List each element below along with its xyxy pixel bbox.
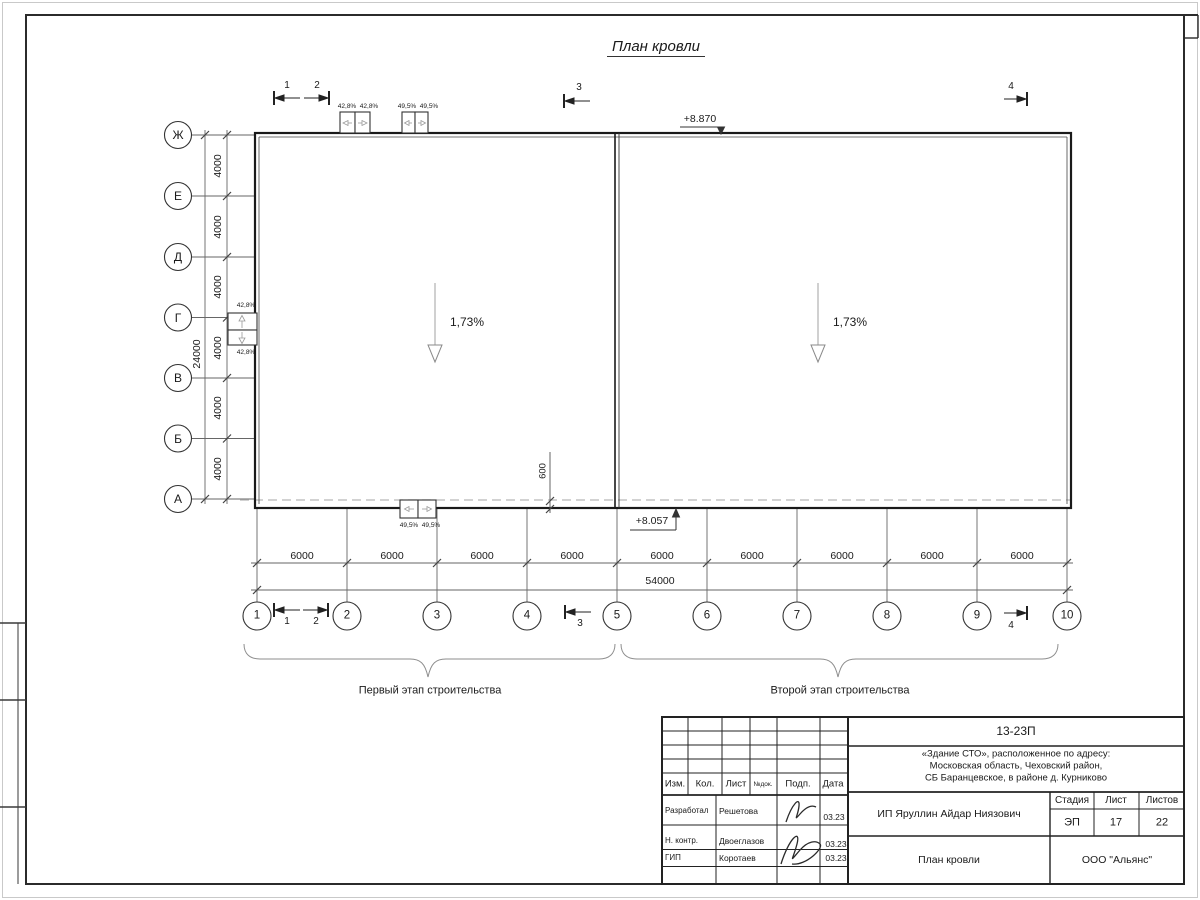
tb-date-ncontrol: 03.23 [825, 840, 846, 849]
dim-4000: 4000 [213, 215, 224, 238]
dim-6000: 6000 [740, 551, 763, 562]
dim-4000: 4000 [213, 154, 224, 177]
dim-6000: 6000 [830, 551, 853, 562]
tb-header-data: Дата [822, 779, 843, 789]
axis-label-7: 7 [794, 610, 800, 622]
vent-slope-428: 42,8% [237, 350, 255, 357]
section-1-bottom: 1 [284, 617, 290, 627]
tb-header-kol: Кол. [696, 779, 715, 789]
section-3-bottom: 3 [577, 619, 583, 629]
tb-header-stage: Стадия [1055, 796, 1089, 806]
tb-header-ndok: №док. [753, 782, 772, 789]
slope-label-right: 1,73% [833, 316, 867, 328]
dim-600: 600 [538, 463, 548, 479]
section-4-top: 4 [1008, 82, 1014, 92]
tb-name-ncontrol: Двоеглазов [719, 837, 764, 846]
tb-client: ИП Яруллин Айдар Ниязович [877, 809, 1020, 820]
page-title: План кровли [607, 39, 705, 57]
axis-label-8: 8 [884, 610, 890, 622]
axis-label-d: Д [174, 251, 182, 263]
drawing-sheet: План кровли Ж Е Д Г В Б А 1 2 3 4 5 6 7 … [0, 0, 1200, 900]
section-2-bottom: 2 [313, 617, 319, 627]
axis-label-2: 2 [344, 610, 350, 622]
dim-6000: 6000 [470, 551, 493, 562]
elevation-top: +8.870 [684, 114, 716, 125]
tb-name-gip: Коротаев [719, 854, 756, 863]
vent-slope-495: 49,5% [420, 104, 438, 111]
dim-6000: 6000 [380, 551, 403, 562]
stage-braces [244, 644, 1058, 677]
tb-company: ООО "Альянс" [1082, 855, 1152, 866]
tb-sheet-value: 17 [1110, 818, 1122, 829]
axis-label-v: В [174, 372, 182, 384]
vent-slope-428: 42,8% [237, 303, 255, 310]
tb-role-gip: ГИП [665, 854, 681, 862]
tb-header-podp: Подп. [785, 779, 810, 789]
vent-slope-495: 49,5% [400, 523, 418, 530]
tb-header-sheet: Лист [1105, 796, 1127, 806]
slope-label-left: 1,73% [450, 316, 484, 328]
vent-flow-arrows [239, 121, 432, 512]
elevation-bottom: +8.057 [636, 516, 668, 527]
section-2-top: 2 [314, 81, 320, 91]
signatures [781, 802, 821, 865]
dim-6000: 6000 [560, 551, 583, 562]
dim-6000: 6000 [920, 551, 943, 562]
tb-name-developer: Решетова [719, 807, 758, 816]
dim-ticks-left [201, 131, 231, 503]
dim-6000: 6000 [290, 551, 313, 562]
tb-address-line2: Московская область, Чеховский район, [930, 761, 1103, 771]
tb-address-line1: «Здание СТО», расположенное по адресу: [922, 749, 1111, 759]
tb-drawing-title: План кровли [918, 855, 980, 866]
tb-header-list: Лист [726, 779, 747, 789]
dim-600 [546, 452, 554, 513]
axis-label-zh: Ж [172, 129, 183, 141]
vent-slope-428: 42,8% [338, 104, 356, 111]
dim-4000: 4000 [213, 275, 224, 298]
axis-label-10: 10 [1061, 610, 1074, 622]
axis-label-9: 9 [974, 610, 980, 622]
slope-arrows [428, 283, 825, 362]
stage-label-first: Первый этап строительства [359, 686, 502, 697]
axis-label-6: 6 [704, 610, 710, 622]
dim-6000: 6000 [1010, 551, 1033, 562]
axis-label-1: 1 [254, 610, 260, 622]
section-3-top: 3 [576, 83, 582, 93]
axis-label-b: Б [174, 433, 182, 445]
section-marks-top [274, 91, 1027, 108]
axis-label-e: Е [174, 190, 182, 202]
section-marks-bottom [274, 603, 1027, 620]
tb-date-developer: 03.23 [823, 813, 844, 822]
tb-role-developer: Разработал [665, 807, 709, 815]
dim-4000: 4000 [213, 397, 224, 420]
section-1-top: 1 [284, 81, 290, 91]
tb-address-line3: СБ Баранцевское, в районе д. Курниково [925, 773, 1107, 783]
axis-label-3: 3 [434, 610, 440, 622]
section-4-bottom: 4 [1008, 621, 1014, 631]
dim-54000: 54000 [645, 576, 674, 587]
dim-4000: 4000 [213, 457, 224, 480]
elevation-leaders [630, 127, 725, 530]
dim-6000: 6000 [650, 551, 673, 562]
building-outline [240, 133, 1072, 508]
stage-label-second: Второй этап строительства [771, 686, 910, 697]
tb-header-izm: Изм. [665, 779, 685, 789]
tb-doc-code: 13-23П [996, 725, 1035, 737]
left-margin-stamp [0, 623, 26, 884]
tb-stage-value: ЭП [1064, 818, 1080, 829]
tb-sheets-value: 22 [1156, 818, 1168, 829]
axis-label-a: А [174, 493, 182, 505]
vent-slope-495: 49,5% [398, 104, 416, 111]
tb-date-gip: 03.23 [825, 854, 846, 863]
axis-label-4: 4 [524, 610, 530, 622]
vent-slope-428: 42,8% [360, 104, 378, 111]
dim-24000: 24000 [192, 339, 203, 368]
vent-slope-495: 49,5% [422, 523, 440, 530]
axis-label-g: Г [175, 312, 182, 324]
dim-4000: 4000 [213, 336, 224, 359]
tb-role-ncontrol: Н. контр. [665, 837, 698, 845]
axis-label-5: 5 [614, 610, 620, 622]
tb-header-sheets: Листов [1146, 796, 1179, 806]
